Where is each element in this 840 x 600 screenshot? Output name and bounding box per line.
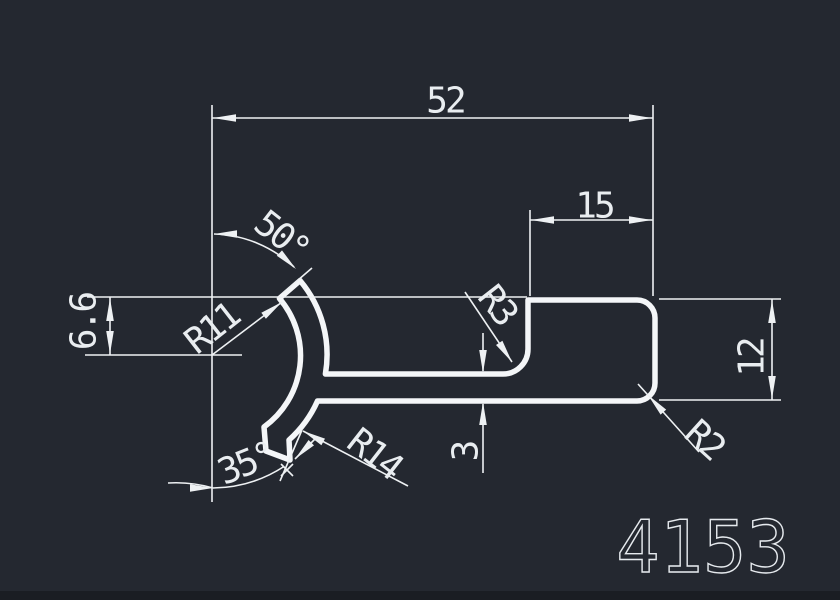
dim-text-6-6: 6.6 <box>64 293 105 351</box>
profile-drawing: 52 15 6.6 12 3 50° 35° R11 R14 R3 R2 415… <box>0 0 840 600</box>
dim-text-15: 15 <box>575 186 613 227</box>
part-number-text: 4153 <box>616 505 789 589</box>
bottom-edge-strip <box>0 591 840 600</box>
dim-text-52: 52 <box>426 81 464 122</box>
cad-drawing-canvas: 52 15 6.6 12 3 50° 35° R11 R14 R3 R2 415… <box>0 0 840 600</box>
dim-text-12: 12 <box>732 339 773 377</box>
dim-text-3: 3 <box>446 442 487 461</box>
